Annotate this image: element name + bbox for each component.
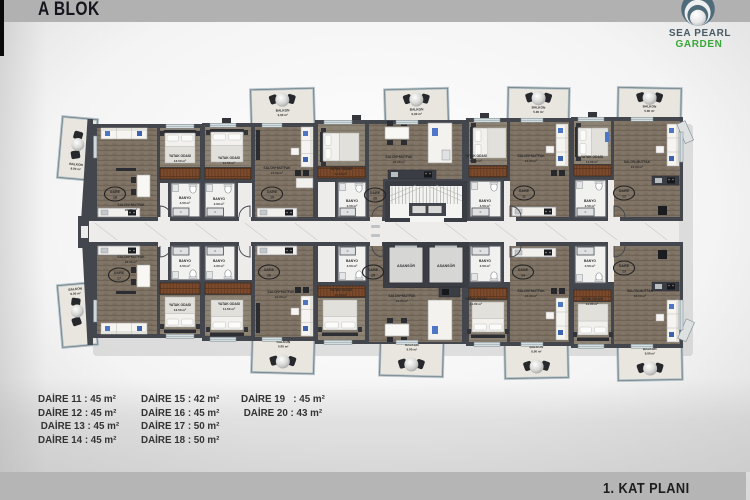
svg-text:26.00 m²: 26.00 m² <box>125 208 137 212</box>
svg-text:SALON-MUTFAK: SALON-MUTFAK <box>624 160 651 164</box>
svg-text:4.50 m²: 4.50 m² <box>585 264 596 268</box>
svg-text:11.50 m²: 11.50 m² <box>223 307 235 311</box>
svg-text:BANYO: BANYO <box>179 196 191 200</box>
svg-text:SALON+MUTFAK: SALON+MUTFAK <box>267 290 295 294</box>
svg-text:DAİRE: DAİRE <box>518 268 528 272</box>
svg-text:5.00 m²: 5.00 m² <box>644 109 654 113</box>
svg-text:5.00 m²: 5.00 m² <box>277 113 287 117</box>
svg-text:4.00 m²: 4.00 m² <box>214 264 225 268</box>
svg-text:11.50 m²: 11.50 m² <box>223 161 235 165</box>
svg-text:YATAK ODASI: YATAK ODASI <box>169 154 191 158</box>
svg-text:BANYO: BANYO <box>346 199 358 203</box>
svg-text:13.50 m²: 13.50 m² <box>174 308 186 312</box>
svg-text:DAİRE: DAİRE <box>267 190 277 194</box>
svg-text:14: 14 <box>521 273 525 277</box>
svg-text:SALON+MUTFAK: SALON+MUTFAK <box>517 289 545 293</box>
svg-text:26.00 m²: 26.00 m² <box>125 260 137 264</box>
svg-text:YATAK ODASI: YATAK ODASI <box>581 297 603 301</box>
svg-text:4.00 m²: 4.00 m² <box>214 202 225 206</box>
svg-text:BANYO: BANYO <box>584 259 596 263</box>
svg-text:12: 12 <box>622 194 626 198</box>
svg-text:18.50 m²: 18.50 m² <box>634 294 646 298</box>
svg-text:13: 13 <box>622 269 626 273</box>
svg-text:ASANSÖR: ASANSÖR <box>437 263 455 268</box>
svg-text:11.50 m²: 11.50 m² <box>586 160 598 164</box>
svg-text:11.50 m²: 11.50 m² <box>470 159 482 163</box>
svg-text:BANYO: BANYO <box>179 259 191 263</box>
svg-text:4.50 m²: 4.50 m² <box>347 264 358 268</box>
svg-text:YATAK ODASI: YATAK ODASI <box>218 156 240 160</box>
svg-text:5.00 m²: 5.00 m² <box>278 344 288 348</box>
svg-text:ASANSÖR: ASANSÖR <box>397 263 415 268</box>
svg-text:24.50 m²: 24.50 m² <box>271 171 283 175</box>
svg-text:5.00 m²: 5.00 m² <box>533 110 543 114</box>
svg-text:18: 18 <box>113 195 117 199</box>
svg-text:YATAK ODASI: YATAK ODASI <box>330 167 352 171</box>
svg-text:4.50 m²: 4.50 m² <box>180 264 191 268</box>
svg-text:DAİRE: DAİRE <box>519 189 529 193</box>
svg-text:19: 19 <box>270 195 274 199</box>
svg-text:YATAK ODASI: YATAK ODASI <box>330 288 352 292</box>
svg-text:SALON+MUTFAK: SALON+MUTFAK <box>263 166 291 170</box>
svg-text:4.50 m²: 4.50 m² <box>180 201 191 205</box>
svg-text:24.00 m²: 24.00 m² <box>396 299 408 303</box>
svg-text:SALON+MUTFAK: SALON+MUTFAK <box>388 294 416 298</box>
svg-text:SALON+MUTFAK: SALON+MUTFAK <box>385 155 413 159</box>
svg-text:20: 20 <box>373 196 377 200</box>
svg-text:BANYO: BANYO <box>346 259 358 263</box>
svg-text:4.50 m²: 4.50 m² <box>585 204 596 208</box>
svg-text:11.00 m²: 11.00 m² <box>470 302 482 306</box>
svg-text:16: 16 <box>267 273 271 277</box>
svg-text:YATAK ODASI: YATAK ODASI <box>169 303 191 307</box>
svg-text:4.50 m²: 4.50 m² <box>480 264 491 268</box>
svg-text:13.50 m²: 13.50 m² <box>174 159 186 163</box>
svg-text:11: 11 <box>522 194 526 198</box>
svg-text:11.00 m²: 11.00 m² <box>335 293 347 297</box>
svg-text:11.00 m²: 11.00 m² <box>586 302 598 306</box>
svg-text:12.50 m²: 12.50 m² <box>335 172 347 176</box>
svg-text:4.50 m²: 4.50 m² <box>480 204 491 208</box>
svg-text:DAİRE: DAİRE <box>368 268 378 272</box>
svg-text:SALON+MUTFAK: SALON+MUTFAK <box>117 255 145 259</box>
svg-text:5.00 m²: 5.00 m² <box>531 349 541 353</box>
svg-text:DAİRE: DAİRE <box>114 271 124 275</box>
svg-text:BANYO: BANYO <box>479 199 491 203</box>
svg-text:5.00 m²: 5.00 m² <box>411 112 421 116</box>
svg-text:4.50 m²: 4.50 m² <box>347 204 358 208</box>
svg-text:BANYO: BANYO <box>213 197 225 201</box>
svg-text:BANYO: BANYO <box>479 259 491 263</box>
svg-text:SALON-MUTFAK: SALON-MUTFAK <box>627 289 654 293</box>
svg-text:DAİRE: DAİRE <box>619 264 629 268</box>
svg-text:24.00 m²: 24.00 m² <box>525 294 537 298</box>
svg-text:22.00 m²: 22.00 m² <box>393 160 405 164</box>
svg-text:DAİRE: DAİRE <box>110 190 120 194</box>
svg-text:5.00 m²: 5.00 m² <box>407 347 417 351</box>
svg-text:BANYO: BANYO <box>213 259 225 263</box>
svg-text:DAİRE: DAİRE <box>619 189 629 193</box>
svg-text:17: 17 <box>117 276 121 280</box>
svg-text:5.00 m²: 5.00 m² <box>645 351 655 355</box>
svg-text:YATAK ODASI: YATAK ODASI <box>581 155 603 159</box>
svg-text:YATAK ODASI: YATAK ODASI <box>465 297 487 301</box>
svg-text:24.00 m²: 24.00 m² <box>631 165 643 169</box>
svg-text:24.00 m²: 24.00 m² <box>275 295 287 299</box>
svg-text:YATAK ODASI: YATAK ODASI <box>218 302 240 306</box>
svg-text:24.00 m²: 24.00 m² <box>525 159 537 163</box>
svg-text:15: 15 <box>371 273 375 277</box>
svg-text:DAİRE: DAİRE <box>370 191 380 195</box>
svg-text:YATAK ODASI: YATAK ODASI <box>465 154 487 158</box>
svg-text:DAİRE: DAİRE <box>264 268 274 272</box>
svg-text:BANYO: BANYO <box>584 199 596 203</box>
svg-text:SALON+MUTFAK: SALON+MUTFAK <box>117 203 145 207</box>
svg-text:SALON+MUTFAK: SALON+MUTFAK <box>517 154 545 158</box>
